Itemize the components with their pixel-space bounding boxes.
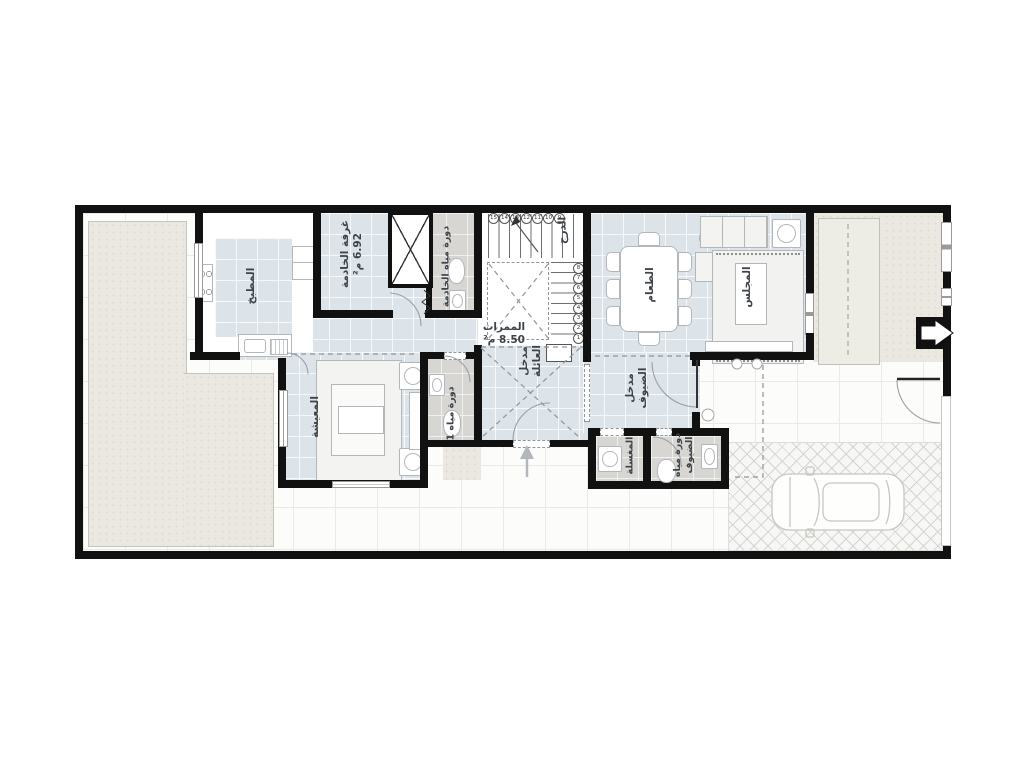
chair <box>606 306 620 326</box>
room-label-maid-room: غرفة الخادمة 6.92 م² <box>339 214 365 294</box>
wall <box>583 205 591 362</box>
guest-bath-door-sill <box>656 428 672 436</box>
label-text: مدخل الضيوف <box>624 365 650 411</box>
room-label-living: المعيشة <box>309 392 323 442</box>
room-label-guest-bath: دورة مياه الضيوف <box>671 427 697 483</box>
chair <box>638 332 660 346</box>
room-label-family-entrance: مدخل العائلة <box>518 338 544 384</box>
wall <box>474 440 513 447</box>
label-text: دورة مياه الخادمة <box>440 226 452 307</box>
label-text: المغسلة <box>624 437 636 475</box>
window <box>194 243 203 298</box>
stair-number: 10 <box>543 213 554 224</box>
majlis-bench <box>705 341 793 352</box>
wall <box>428 352 444 359</box>
coffee-table <box>338 406 384 434</box>
room-label-majlis: المجلس <box>741 265 755 309</box>
washbasin-door-sill <box>600 428 624 436</box>
wall <box>474 345 482 447</box>
room-label-stairs: الدرج <box>557 216 570 246</box>
sliding-door <box>332 481 390 488</box>
main-entrance-marker <box>916 317 944 349</box>
wall <box>190 352 240 360</box>
window <box>805 293 814 335</box>
stair-number: 12 <box>521 213 532 224</box>
label-text: دورة مياه الضيوف <box>672 427 696 483</box>
room-label-kitchen: المطبخ <box>245 263 259 309</box>
label-text: المعيشة <box>309 396 322 438</box>
kitchen-sink-counter <box>238 334 292 357</box>
window <box>279 390 288 447</box>
chair <box>678 279 692 299</box>
left-yard <box>88 221 187 547</box>
left-yard-extension <box>184 373 274 547</box>
room-label-washbasin: المغسلة <box>624 432 637 480</box>
corner-table <box>772 219 801 248</box>
stair-number: 14 <box>499 213 510 224</box>
wall <box>474 205 482 318</box>
wall <box>313 310 393 318</box>
family-entry-mat <box>443 447 481 480</box>
wall <box>75 205 83 559</box>
wall <box>313 205 321 318</box>
room-label-maid-bath: دورة مياه الخادمة <box>440 221 453 313</box>
chair <box>678 306 692 326</box>
stair-newel <box>546 344 572 362</box>
label-text: الدرج <box>556 217 569 244</box>
elevator-shaft <box>388 211 433 288</box>
wall <box>426 287 432 312</box>
cushion-row <box>716 253 800 255</box>
wall <box>690 352 813 360</box>
cushion-row <box>716 360 800 362</box>
majlis-top-sofa <box>700 216 768 248</box>
stair-number: 13 <box>510 213 521 224</box>
wall <box>75 551 950 559</box>
label-area: 6.92 م² <box>352 233 365 275</box>
drainer <box>270 339 288 355</box>
car-paving <box>728 442 943 551</box>
door-sill <box>584 364 590 422</box>
wall <box>943 546 951 559</box>
door-sill <box>444 352 466 360</box>
label-text: المطبخ <box>245 268 258 305</box>
label-text: الممرات <box>483 321 525 334</box>
label-text: الطعام <box>644 267 657 302</box>
wall <box>550 440 590 447</box>
label-text: المجلس <box>741 266 754 307</box>
stair-number: 15 <box>488 213 499 224</box>
floor-plan-canvas: 15 14 13 12 11 10 9 8 7 6 5 4 3 2 1 <box>0 0 1024 768</box>
washbasin-fixture <box>429 374 445 396</box>
washbasin-fixture <box>598 446 622 472</box>
label-text: غرفة الخادمة <box>339 220 352 288</box>
stair-number: 11 <box>532 213 543 224</box>
wall <box>420 352 428 488</box>
washbasin-fixture <box>701 444 718 469</box>
wall <box>806 333 814 360</box>
label-text: مدخل العائلة <box>518 338 544 384</box>
label-text: دورة مياه 1 <box>445 386 457 440</box>
room-label-dining: الطعام <box>644 263 658 307</box>
sink-bowl <box>244 339 266 353</box>
car-gate-opening <box>941 396 951 546</box>
chair <box>638 232 660 246</box>
chair <box>606 279 620 299</box>
wall <box>425 310 482 318</box>
entry-porch-canopy <box>818 218 880 365</box>
fridge <box>292 246 314 280</box>
wall <box>75 205 950 213</box>
window <box>941 288 952 306</box>
room-label-bath1: دورة مياه 1 <box>445 383 458 445</box>
wall <box>806 205 814 293</box>
room-label-guest-entrance: مدخل الضيوف <box>624 365 650 411</box>
window <box>941 222 952 272</box>
entry-door-sill <box>513 440 550 448</box>
chair <box>606 252 620 272</box>
wall <box>692 352 700 366</box>
chair <box>678 252 692 272</box>
